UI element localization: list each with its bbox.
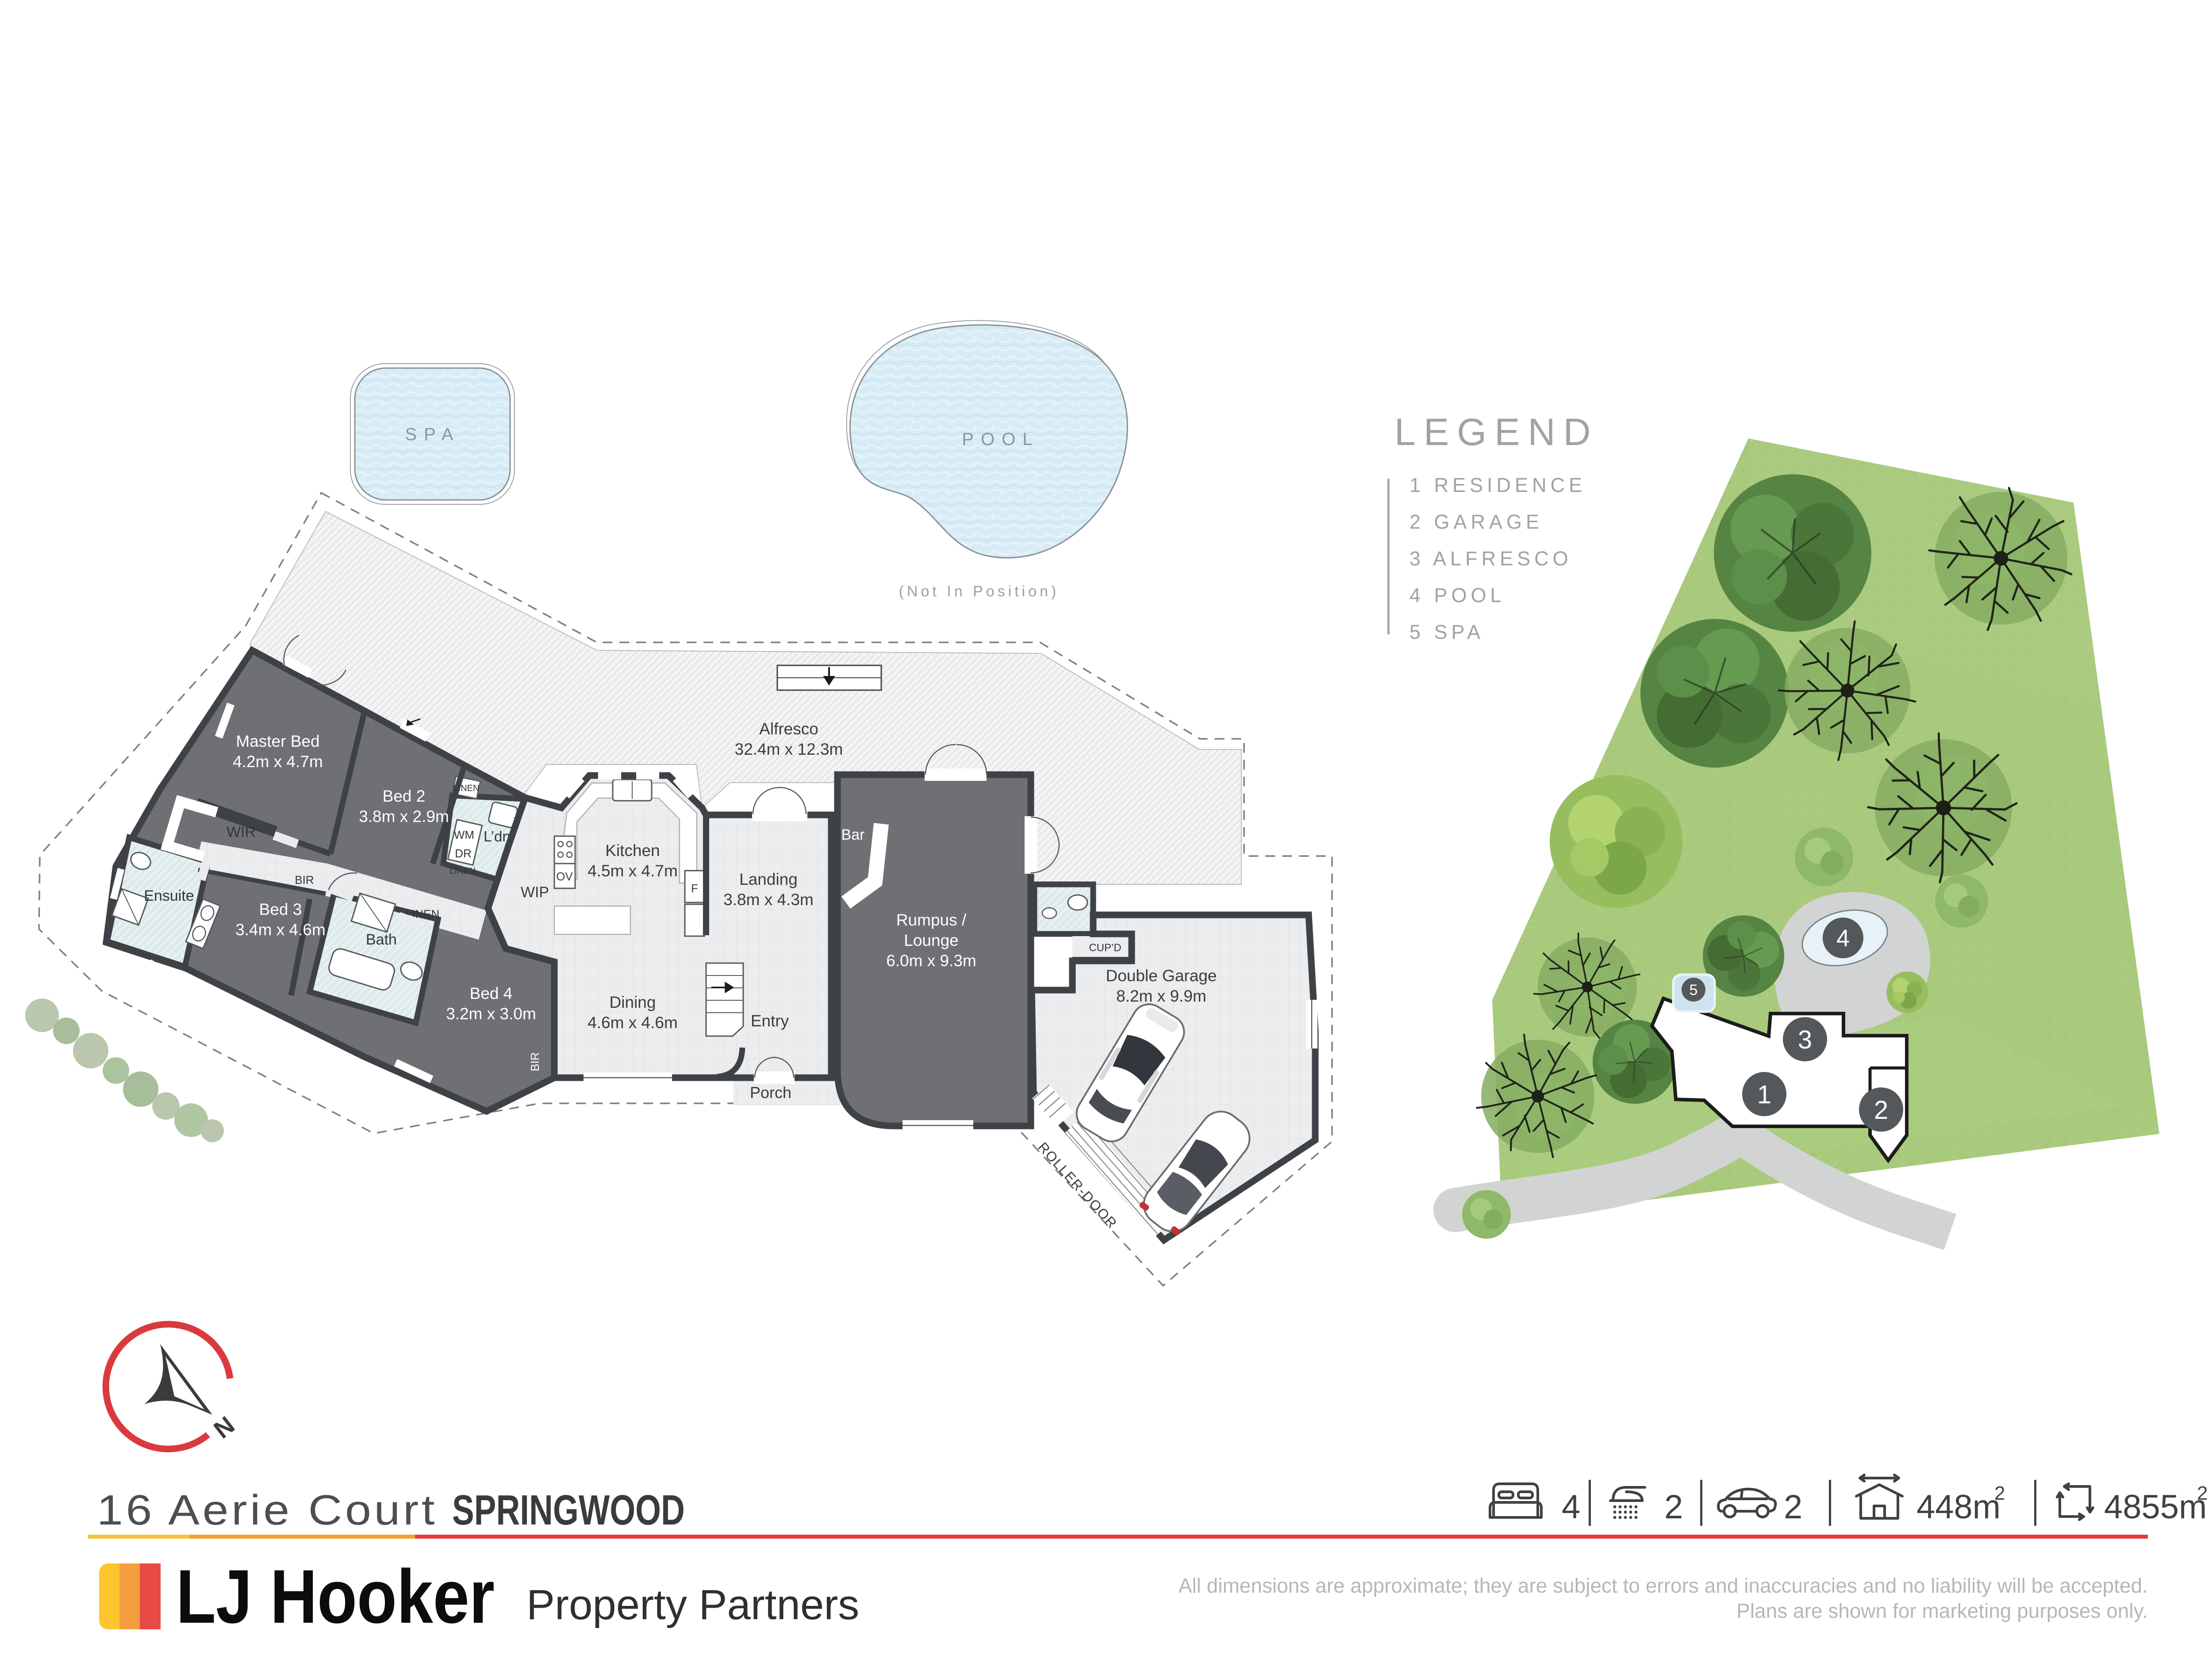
svg-text:2 GARAGE: 2 GARAGE [1409, 511, 1543, 533]
svg-text:CUP’D: CUP’D [1089, 942, 1121, 954]
svg-text:448m: 448m [1916, 1488, 2001, 1526]
svg-text:Master Bed: Master Bed [236, 732, 319, 750]
svg-text:6.0m x 9.3m: 6.0m x 9.3m [886, 952, 976, 970]
svg-text:LEGEND: LEGEND [1394, 411, 1599, 453]
svg-text:4.6m x 4.6m: 4.6m x 4.6m [588, 1014, 678, 1032]
svg-text:Landing: Landing [739, 870, 798, 888]
svg-text:3 ALFRESCO: 3 ALFRESCO [1409, 547, 1572, 570]
svg-text:5: 5 [1690, 982, 1698, 998]
svg-text:2: 2 [1874, 1096, 1888, 1125]
svg-text:4: 4 [1562, 1488, 1580, 1526]
svg-text:2: 2 [1664, 1488, 1683, 1526]
svg-text:16 Aerie Court: 16 Aerie Court [97, 1486, 438, 1534]
svg-text:Property Partners: Property Partners [526, 1581, 859, 1628]
svg-text:4.2m x 4.7m: 4.2m x 4.7m [233, 753, 323, 771]
svg-text:OV: OV [556, 870, 573, 883]
svg-text:2: 2 [1994, 1482, 2005, 1504]
svg-text:(Not In Position): (Not In Position) [899, 583, 1060, 600]
svg-text:8.2m x 9.9m: 8.2m x 9.9m [1116, 987, 1206, 1005]
svg-text:4: 4 [1836, 925, 1850, 952]
svg-text:LINEN: LINEN [453, 783, 480, 793]
svg-text:All dimensions are approximate: All dimensions are approximate; they are… [1179, 1574, 2148, 1597]
svg-text:Lounge: Lounge [904, 931, 958, 949]
svg-text:BIR: BIR [295, 873, 314, 887]
svg-text:2: 2 [2197, 1482, 2208, 1504]
svg-text:3: 3 [1798, 1025, 1812, 1054]
svg-text:WIR: WIR [227, 824, 256, 841]
svg-text:Bed 2: Bed 2 [383, 787, 426, 805]
svg-text:SPA: SPA [405, 425, 460, 444]
svg-text:F: F [691, 882, 698, 895]
svg-text:2: 2 [1784, 1488, 1802, 1526]
svg-text:5 SPA: 5 SPA [1409, 621, 1484, 643]
svg-text:LINEN: LINEN [450, 866, 476, 876]
svg-text:BIR: BIR [528, 1052, 541, 1071]
svg-text:Porch: Porch [750, 1083, 791, 1102]
svg-text:3.4m x 4.6m: 3.4m x 4.6m [235, 921, 326, 939]
svg-text:Ensuite: Ensuite [144, 887, 194, 904]
svg-text:Double Garage: Double Garage [1106, 967, 1217, 985]
svg-text:4 POOL: 4 POOL [1409, 584, 1505, 607]
svg-text:3.8m x 4.3m: 3.8m x 4.3m [723, 891, 814, 909]
svg-text:3.2m x 3.0m: 3.2m x 3.0m [446, 1005, 536, 1023]
svg-text:Bar: Bar [841, 826, 865, 843]
svg-text:1: 1 [1757, 1080, 1771, 1109]
svg-text:4855m: 4855m [2104, 1488, 2207, 1526]
svg-text:Dining: Dining [610, 993, 656, 1011]
svg-text:LJ Hooker: LJ Hooker [176, 1554, 495, 1639]
svg-text:Entry: Entry [751, 1012, 789, 1030]
svg-text:Alfresco: Alfresco [759, 720, 818, 738]
svg-text:SPRINGWOOD: SPRINGWOOD [452, 1486, 685, 1534]
svg-text:3.8m x 2.9m: 3.8m x 2.9m [359, 807, 449, 826]
svg-text:WIP: WIP [521, 884, 549, 901]
svg-text:Kitchen: Kitchen [605, 841, 660, 860]
svg-text:Bed 4: Bed 4 [470, 984, 513, 1002]
svg-text:32.4m x 12.3m: 32.4m x 12.3m [735, 740, 843, 758]
svg-text:POOL: POOL [962, 430, 1039, 449]
svg-text:Bath: Bath [366, 931, 397, 948]
svg-text:DR: DR [455, 847, 472, 860]
svg-text:Bed 3: Bed 3 [259, 900, 302, 918]
svg-text:4.5m x 4.7m: 4.5m x 4.7m [588, 862, 678, 880]
svg-text:1 RESIDENCE: 1 RESIDENCE [1409, 474, 1586, 496]
svg-text:Rumpus /: Rumpus / [896, 911, 967, 929]
svg-text:WM: WM [454, 828, 474, 841]
svg-text:Plans are shown for marketing: Plans are shown for marketing purposes o… [1736, 1599, 2148, 1622]
